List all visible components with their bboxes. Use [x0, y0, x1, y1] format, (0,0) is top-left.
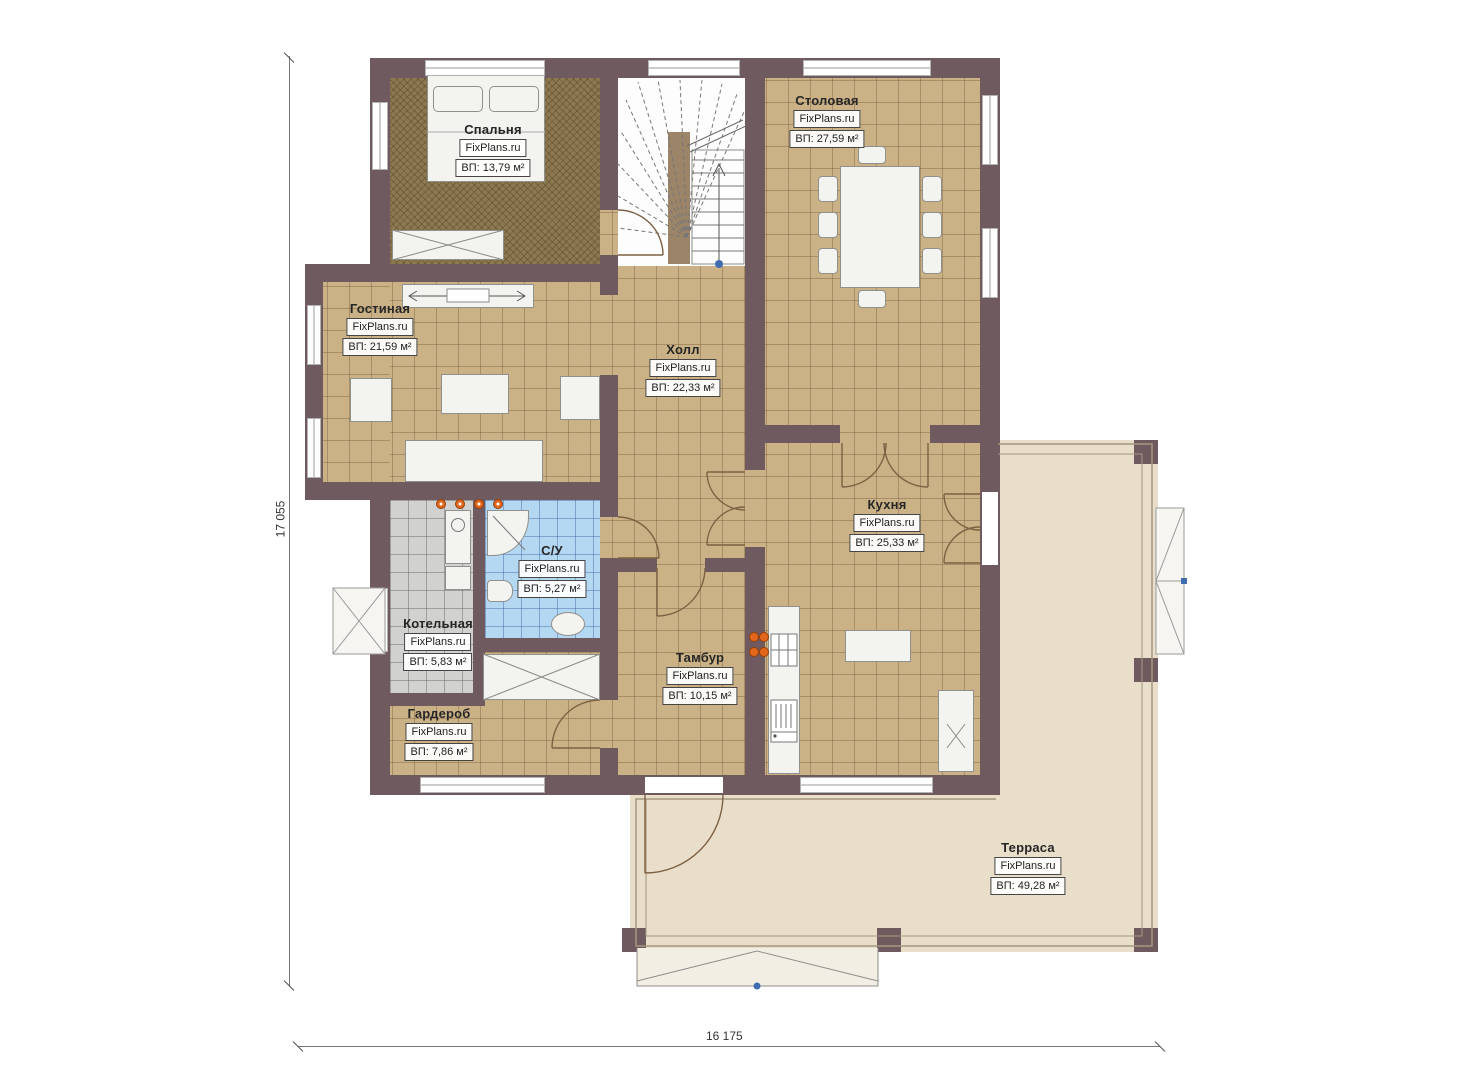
room-watermark: FixPlans.ru [649, 359, 716, 377]
floor-plan-canvas: Спальня FixPlans.ru ВП: 13,79 м² Столова… [0, 0, 1474, 1080]
window [648, 60, 740, 76]
boiler-unit [445, 510, 471, 564]
exterior-hatch-right [1156, 508, 1187, 654]
chair [922, 248, 942, 274]
dining-table [840, 166, 920, 288]
toilet [487, 580, 513, 602]
wall-segment [473, 638, 618, 652]
wall-segment [618, 558, 657, 572]
wardrobe-cabinet [392, 230, 504, 260]
window [803, 60, 931, 76]
armchair [350, 378, 392, 422]
room-name: Гостиная [350, 301, 410, 316]
room-watermark: FixPlans.ru [459, 139, 526, 157]
room-watermark: FixPlans.ru [405, 723, 472, 741]
wall-segment [600, 558, 618, 700]
room-watermark: FixPlans.ru [994, 857, 1061, 875]
room-area: ВП: 5,27 м² [517, 580, 586, 598]
chair [858, 290, 886, 308]
wall-segment [930, 425, 1000, 443]
pillow [489, 86, 539, 112]
wall-segment [473, 500, 485, 652]
room-area: ВП: 25,33 м² [849, 534, 924, 552]
room-watermark: FixPlans.ru [346, 318, 413, 336]
window [800, 777, 933, 793]
dimension-line-vertical [289, 56, 290, 986]
room-watermark: FixPlans.ru [518, 560, 585, 578]
dimension-label-height: 17 055 [273, 501, 287, 538]
tv-console [402, 284, 534, 308]
window [307, 305, 321, 365]
room-area: ВП: 5,83 м² [403, 653, 472, 671]
room-name: С/У [541, 543, 563, 558]
chair [818, 248, 838, 274]
room-label-bedroom: Спальня FixPlans.ru ВП: 13,79 м² [455, 122, 530, 177]
chair [922, 176, 942, 202]
chair [818, 212, 838, 238]
wall-segment [600, 375, 618, 517]
room-area: ВП: 21,59 м² [342, 338, 417, 356]
coffee-table [441, 374, 509, 414]
room-area: ВП: 49,28 м² [990, 877, 1065, 895]
room-label-living: Гостиная FixPlans.ru ВП: 21,59 м² [342, 301, 417, 356]
room-label-vestibule: Тамбур FixPlans.ru ВП: 10,15 м² [662, 650, 737, 705]
room-name: Тамбур [676, 650, 724, 665]
room-watermark: FixPlans.ru [793, 110, 860, 128]
window [307, 418, 321, 478]
room-name: Кухня [867, 497, 906, 512]
room-label-hall: Холл FixPlans.ru ВП: 22,33 м² [645, 342, 720, 397]
dimension-label-width: 16 175 [706, 1029, 743, 1043]
sofa [405, 440, 543, 482]
wall-segment [305, 264, 618, 282]
wall-segment [600, 58, 618, 210]
window [372, 102, 388, 170]
window [420, 777, 545, 793]
wall-segment [745, 547, 765, 795]
room-watermark: FixPlans.ru [666, 667, 733, 685]
sink [551, 612, 585, 636]
room-name: Столовая [795, 93, 858, 108]
terrace-column [877, 928, 901, 952]
window [982, 228, 998, 298]
room-name: Холл [666, 342, 699, 357]
wall-segment [705, 558, 745, 572]
room-label-dining: Столовая FixPlans.ru ВП: 27,59 м² [789, 93, 864, 148]
wall-segment [390, 693, 473, 706]
room-label-bathroom: С/У FixPlans.ru ВП: 5,27 м² [517, 543, 586, 598]
room-watermark: FixPlans.ru [404, 633, 471, 651]
room-area: ВП: 7,86 м² [404, 743, 473, 761]
room-label-terrace: Терраса FixPlans.ru ВП: 49,28 м² [990, 840, 1065, 895]
terrace-door-opening [982, 492, 998, 565]
room-name: Терраса [1001, 840, 1055, 855]
terrace-column [622, 928, 646, 952]
terrace-column [1134, 928, 1158, 952]
window [982, 95, 998, 165]
room-name: Спальня [464, 122, 522, 137]
window [425, 60, 545, 76]
boiler-unit [445, 566, 471, 590]
kitchen-island [845, 630, 911, 662]
wall-segment [370, 58, 390, 282]
terrace-steps-icon [637, 948, 878, 990]
wall-segment [765, 425, 840, 443]
chair [818, 176, 838, 202]
room-area: ВП: 27,59 м² [789, 130, 864, 148]
stairs-stub-wall [668, 132, 690, 264]
wall-segment [745, 58, 765, 470]
room-area: ВП: 13,79 м² [455, 159, 530, 177]
room-area: ВП: 10,15 м² [662, 687, 737, 705]
terrace-column [1134, 440, 1158, 464]
room-label-boiler: Котельная FixPlans.ru ВП: 5,83 м² [403, 616, 473, 671]
room-area: ВП: 22,33 м² [645, 379, 720, 397]
closet-cabinet [483, 654, 600, 700]
wall-segment [600, 748, 618, 795]
room-name: Гардероб [407, 706, 470, 721]
fridge [938, 690, 974, 772]
wall-segment [305, 482, 618, 500]
entrance-door-opening [645, 777, 723, 793]
wall-segment [600, 255, 618, 295]
terrace-column [1134, 658, 1158, 682]
chair [922, 212, 942, 238]
armchair [560, 376, 600, 420]
chair [858, 146, 886, 164]
window [372, 588, 388, 652]
kitchen-counter [768, 606, 800, 774]
room-name: Котельная [403, 616, 473, 631]
room-watermark: FixPlans.ru [853, 514, 920, 532]
room-label-wardrobe: Гардероб FixPlans.ru ВП: 7,86 м² [404, 706, 473, 761]
room-label-kitchen: Кухня FixPlans.ru ВП: 25,33 м² [849, 497, 924, 552]
dimension-line-horizontal [298, 1046, 1160, 1047]
terrace-floor-bottom [630, 793, 998, 952]
pillow [433, 86, 483, 112]
